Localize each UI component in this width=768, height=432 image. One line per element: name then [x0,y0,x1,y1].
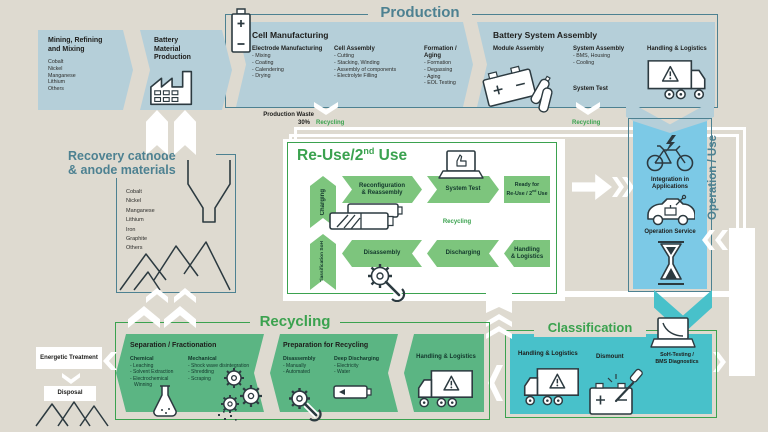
list-item: Lithium [48,79,129,86]
dismount-label: Dismount [596,354,642,361]
reuse-reconfiguration-box: Reconfiguration& Reassembly [342,176,422,203]
gear-wrench-icon [360,258,408,302]
list-item: - Calendering [252,67,330,74]
flow-band-classification-operation [729,228,755,376]
list-item: Cobalt [126,188,155,197]
car-icon [645,192,695,226]
list-item: - Water [334,369,390,375]
list-item: Nickel [48,66,129,73]
funnel-icon [183,158,235,244]
list-item: Manganese [48,73,129,80]
recycling-title: Recycling [250,313,340,331]
list-item: - Mixing [252,53,330,60]
column-header: Disassembly [283,356,333,363]
column-items: - BMS, Housing- Cooling [573,53,643,67]
list-item: Lithium [126,216,155,225]
column-items: - Formation- Degassing- Aging- EOL Testi… [424,60,472,87]
column-header: Mechanical [188,356,262,363]
energetic-treatment-box: Energetic Treatment [36,347,102,369]
list-item: - Stacking, Winding [334,60,420,67]
disposal-label: Disposal [57,390,82,397]
list-item: Cobalt [48,59,129,66]
reuse-title: Re-Use/2nd Use [297,146,407,165]
stage-title: Battery Material Production [154,37,196,63]
laptop-thumbsup-icon [438,149,484,181]
production-waste-label: Production Waste [256,112,314,119]
stage-title: Separation / Fractionation [130,342,216,351]
ready-label: Ready forRe-Use / 2nd Use [506,182,547,198]
stage-title: Preparation for Recycling [283,342,368,351]
soh-testing-label: SoH-Testing /BMS Diagnostics [644,352,710,365]
list-item: - Cooling [573,60,643,67]
module-assembly-icon [482,56,554,114]
material-list: CobaltNickelManganeseLithiumOthers [48,59,129,93]
stage-title: Battery System Assembly [493,30,597,40]
stage-cell-manufacturing: Cell Manufacturing Electrode Manufacturi… [236,22,473,107]
list-item: - EOL Testing [424,80,472,87]
disassembly-label: Disassembly [364,250,401,257]
battery-empty-icon [332,382,374,402]
list-item: - Assembly of components [334,67,420,74]
column-items: - Mixing- Coating- Calendering- Drying [252,53,330,80]
classification-soh-label: Classification SoH [320,241,325,283]
battery-pack-icon [328,202,406,232]
disposal-piles-icon [34,398,110,428]
bike-icon [645,134,695,174]
logistics-label: Handling & Logistics [416,354,476,361]
column-header: Electrode Manufacturing [252,46,330,53]
reuse-title-main: Re-Use/2 [297,147,363,164]
list-item: Iron [126,226,155,235]
hourglass-icon [655,239,687,287]
truck-icon [416,368,474,410]
reuse-title-tail: Use [374,147,407,164]
material-piles-icon [118,236,234,292]
list-item: Nickel [126,197,155,206]
system-test-label: System Test [573,86,608,93]
flow-chevron-energetic-disposal [62,373,80,384]
operation-title: Operation / Use [707,130,733,226]
flask-icon [150,384,180,418]
battery-dismount-icon [588,368,646,416]
flow-chevron-classification-recycling [488,365,503,401]
battery-lifecycle-diagram: Mining, Refining and Mixing CobaltNickel… [0,0,768,432]
operation-service-label: Operation Service [636,229,704,236]
reuse-ready-box: Ready forRe-Use / 2nd Use [504,176,550,203]
column-header: Formation / Aging [424,46,472,60]
production-waste-percent: 30% [290,120,310,127]
list-item: - Drying [252,73,330,80]
system-test-label: System Test [446,186,481,193]
column-items: - Cutting- Stacking, Winding- Assembly o… [334,53,420,80]
list-item: Manganese [126,207,155,216]
column-items: - Electricity- Water [334,363,390,376]
classification-logistics-label: Handling & Logistics [518,351,592,358]
reuse-logistics-label: Handling& Logistics [511,247,543,261]
discharging-label: Discharging [446,250,481,257]
truck-icon [522,366,580,408]
reuse-discharging-box: Discharging [427,240,499,267]
classification-title: Classification [534,320,646,337]
column-header: System Assembly [573,46,643,53]
column-header: Module Assembly [493,46,544,53]
integration-label: Integration in Applications [636,177,704,191]
charging-label: Charging [320,189,327,215]
list-item: - Electrolyte Filling [334,73,420,80]
stage-title: Cell Manufacturing [252,30,329,40]
assembly-recycling-label: Recycling [572,120,608,127]
laptop-soh-icon [650,316,696,350]
list-item: - BMS, Housing [573,53,643,60]
list-item: Others [48,86,129,93]
list-item: - Degassing [424,67,472,74]
energetic-treatment-label: Energetic Treatment [40,355,98,362]
list-item: - Cutting [334,53,420,60]
list-item: - Coating [252,60,330,67]
column-header: Cell Assembly [334,46,420,53]
stage-mining: Mining, Refining and Mixing CobaltNickel… [38,30,133,110]
production-title: Production [368,4,472,22]
logistics-label: Handling & Logistics [647,46,707,53]
truck-icon [646,58,708,102]
battery-icon [230,8,252,54]
column-header: Deep Discharging [334,356,390,363]
reuse-recycling-label: Recycling [428,219,486,226]
column-items: - Manually- Automated [283,363,333,376]
gears-icon [210,364,266,422]
list-item: - Automated [283,369,333,375]
list-item: - Formation [424,60,472,67]
stage-title: Mining, Refining and Mixing [48,37,110,54]
production-waste-recycling-label: Recycling [316,120,352,127]
reconfiguration-label: Reconfiguration& Reassembly [359,183,405,197]
list-item: - Aging [424,74,472,81]
reuse-title-sup: nd [363,146,374,156]
gear-wrench-icon [282,382,324,422]
column-header: Chemical [130,356,186,363]
factory-icon [148,66,200,106]
